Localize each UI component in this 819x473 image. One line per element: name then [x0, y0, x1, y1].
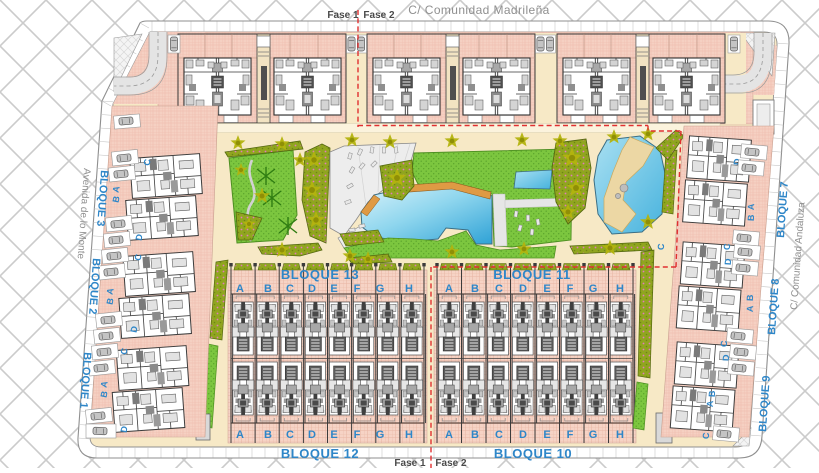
svg-text:B: B: [707, 390, 717, 398]
svg-text:H: H: [616, 283, 624, 295]
svg-text:G: G: [376, 429, 385, 441]
svg-text:A: A: [236, 283, 244, 295]
svg-text:A: A: [746, 203, 756, 211]
svg-text:D: D: [519, 283, 527, 295]
svg-text:D: D: [308, 283, 316, 295]
svg-text:C: C: [719, 340, 729, 348]
svg-text:D: D: [308, 429, 316, 441]
svg-text:C: C: [495, 283, 503, 295]
svg-text:C: C: [286, 283, 294, 295]
svg-text:F: F: [567, 429, 574, 441]
svg-text:B: B: [264, 283, 272, 295]
svg-text:C: C: [495, 429, 503, 441]
svg-text:H: H: [405, 283, 413, 295]
svg-text:C: C: [286, 429, 294, 441]
svg-text:B: B: [264, 429, 272, 441]
svg-text:A: A: [445, 429, 453, 441]
svg-text:Fase 1: Fase 1: [394, 458, 426, 468]
svg-text:E: E: [330, 429, 337, 441]
svg-text:B: B: [745, 294, 755, 302]
svg-text:D: D: [519, 429, 527, 441]
svg-text:D: D: [723, 258, 733, 266]
svg-text:B: B: [471, 429, 479, 441]
svg-text:F: F: [354, 283, 361, 295]
svg-text:A: A: [236, 429, 244, 441]
svg-text:Fase 2: Fase 2: [435, 458, 467, 468]
svg-text:C/ Comunidad Madrileña: C/ Comunidad Madrileña: [408, 3, 550, 17]
svg-text:E: E: [330, 283, 337, 295]
svg-text:BLOQUE 13: BLOQUE 13: [281, 267, 359, 282]
svg-text:C: C: [656, 243, 666, 251]
svg-text:Fase 2: Fase 2: [363, 10, 395, 21]
svg-text:A: A: [445, 283, 453, 295]
svg-text:G: G: [376, 283, 385, 295]
svg-text:G: G: [589, 283, 598, 295]
svg-text:B: B: [471, 283, 479, 295]
svg-text:H: H: [405, 429, 413, 441]
svg-text:BLOQUE 11: BLOQUE 11: [493, 267, 570, 282]
svg-text:F: F: [354, 429, 361, 441]
svg-text:F: F: [567, 283, 574, 295]
svg-text:E: E: [543, 283, 550, 295]
svg-text:C: C: [722, 243, 732, 251]
svg-text:BLOQUE 12: BLOQUE 12: [281, 446, 359, 461]
svg-text:BLOQUE 10: BLOQUE 10: [494, 446, 572, 461]
svg-text:C: C: [701, 432, 711, 440]
svg-text:B: B: [746, 214, 756, 222]
svg-text:A: A: [705, 400, 715, 408]
svg-text:A: A: [745, 305, 755, 313]
svg-text:Fase 1: Fase 1: [327, 10, 359, 21]
svg-text:H: H: [616, 429, 624, 441]
svg-text:G: G: [589, 429, 598, 441]
svg-text:E: E: [543, 429, 550, 441]
